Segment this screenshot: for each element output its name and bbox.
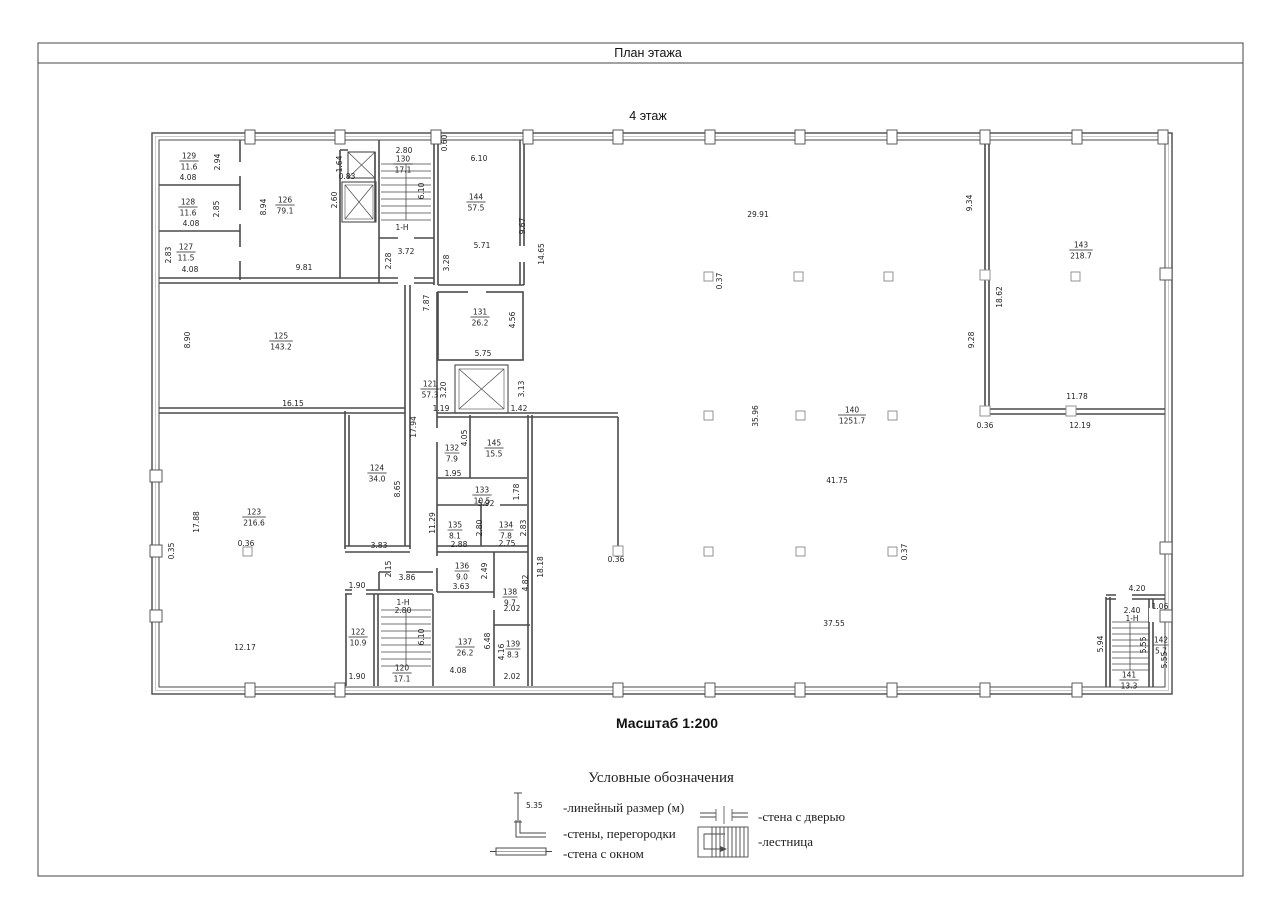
room-label-137: 13726.2: [455, 638, 474, 658]
legend-item-linear: -линейный размер (м): [563, 800, 684, 815]
room-number: 143: [1074, 241, 1089, 250]
wall-door-icon: [700, 806, 748, 824]
dim-label: 5.55: [1160, 651, 1169, 668]
linear-dimension-icon: [514, 793, 522, 822]
dim-label: 4.82: [521, 574, 530, 591]
dim-label: 3.83: [371, 541, 388, 550]
dim-label: 0.60: [440, 134, 449, 151]
dim-label: 5.55: [1139, 636, 1148, 653]
room-number: 130: [396, 155, 411, 164]
room-area: 26.2: [472, 319, 489, 328]
room-number: 145: [487, 439, 502, 448]
dim-label: 2.80: [475, 519, 484, 536]
dim-label: 17.94: [409, 416, 418, 438]
dim-label: 3.20: [439, 381, 448, 398]
door-openings: [238, 162, 1154, 628]
dim-label: 2.80: [395, 606, 412, 615]
room-number: 127: [179, 243, 194, 252]
room-label-124: 12434.0: [367, 464, 386, 484]
room-number: 141: [1122, 671, 1137, 680]
room-area: 11.5: [178, 254, 195, 263]
dim-label: 4.08: [180, 173, 197, 182]
room-area: 57.5: [468, 204, 485, 213]
dim-label: 3.63: [453, 582, 470, 591]
room-area: 7.9: [446, 455, 458, 464]
room-area: 15.5: [486, 450, 503, 459]
dim-label: 2.80: [396, 146, 413, 155]
room-label-131: 13126.2: [470, 308, 489, 328]
room-number: 120: [395, 664, 410, 673]
room-number: 122: [351, 628, 366, 637]
dim-label: 4.08: [450, 666, 467, 675]
room-area: 26.2: [457, 649, 474, 658]
room-label-130: 13017.1: [393, 155, 412, 175]
dim-label: 1.90: [349, 581, 366, 590]
dim-label: 29.91: [747, 210, 769, 219]
room-number: 131: [473, 308, 488, 317]
room-area: 17.1: [394, 675, 411, 684]
room-area: 79.1: [277, 207, 294, 216]
dim-label: 0.37: [715, 272, 724, 289]
dim-label: 4.20: [1129, 584, 1146, 593]
room-number: 121: [423, 380, 438, 389]
dim-label: 2.28: [384, 252, 393, 269]
room-number: 136: [455, 562, 470, 571]
dim-label: 11.29: [428, 512, 437, 534]
dim-label: 2.94: [213, 153, 222, 170]
dim-label: 1.64: [335, 155, 344, 172]
room-area: 8.3: [507, 651, 519, 660]
dim-label: 2.85: [212, 200, 221, 217]
room-number: 132: [445, 444, 460, 453]
floor-title: 4 этаж: [629, 109, 667, 123]
room-area: 34.0: [369, 475, 386, 484]
room-number: 139: [506, 640, 521, 649]
room-number: 135: [448, 521, 463, 530]
dim-label: 1-H: [1125, 614, 1138, 623]
legend-item-walls: -стены, перегородки: [563, 826, 676, 841]
stairs-icon: [698, 827, 748, 857]
room-label-123: 123216.6: [242, 508, 266, 528]
room-number: 140: [845, 406, 860, 415]
dim-label: 0.36: [238, 539, 255, 548]
room-label-139: 1398.3: [506, 640, 521, 660]
dim-label: 12.19: [1069, 421, 1091, 430]
dim-label: 0.83: [339, 172, 356, 181]
dim-label: 1-H: [395, 223, 408, 232]
dim-label: 2.83: [519, 519, 528, 536]
wall-window-icon: [490, 848, 552, 855]
dim-label: 3.72: [398, 247, 415, 256]
room-labels: 12911.612811.612711.512679.113017.114457…: [176, 152, 1168, 691]
dim-label: 8.94: [259, 198, 268, 215]
dim-label: 6.48: [483, 632, 492, 649]
dim-label: 2.02: [504, 604, 521, 613]
room-area: 9.0: [456, 573, 468, 582]
dim-label: 2.15: [384, 560, 393, 577]
dim-label: 37.55: [823, 619, 845, 628]
room-area: 11.6: [180, 209, 197, 218]
room-label-145: 14515.5: [484, 439, 503, 459]
room-label-143: 143218.7: [1069, 241, 1093, 261]
room-number: 138: [503, 588, 518, 597]
document-page: План этажа 4 этаж Масштаб 1:200: [0, 0, 1280, 911]
dim-label: 4.56: [508, 311, 517, 328]
dim-label: 35.96: [751, 405, 760, 427]
room-area: 10.9: [350, 639, 367, 648]
room-number: 142: [1154, 636, 1169, 645]
room-label-128: 12811.6: [178, 198, 197, 218]
dim-label: 8.65: [393, 480, 402, 497]
legend: Условные обозначения 5.35 -линейный разм…: [490, 770, 845, 861]
dim-label: 6.10: [471, 154, 488, 163]
room-number: 128: [181, 198, 196, 207]
page-header-title: План этажа: [614, 46, 682, 60]
room-label-134: 1347.8: [499, 521, 514, 541]
room-number: 134: [499, 521, 514, 530]
dim-label: 7.87: [422, 294, 431, 311]
dim-label: 4.05: [460, 429, 469, 446]
room-label-129: 12911.6: [179, 152, 198, 172]
room-label-141: 14113.3: [1119, 671, 1138, 691]
dim-label: 1.19: [433, 404, 450, 413]
room-number: 123: [247, 508, 262, 517]
dim-label: 5.75: [475, 349, 492, 358]
dim-label: 41.75: [826, 476, 848, 485]
dim-label: 14.65: [537, 243, 546, 265]
room-area: 13.3: [1121, 682, 1138, 691]
dim-label: 3.13: [517, 380, 526, 397]
dim-label: 8.90: [183, 331, 192, 348]
dim-label: 3.28: [442, 254, 451, 271]
dim-label: 1.95: [445, 469, 462, 478]
dim-label: 16.15: [282, 399, 304, 408]
legend-item-door: -стена с дверью: [758, 809, 845, 824]
dim-label: 1.78: [512, 483, 521, 500]
dim-label: 5.92: [478, 499, 495, 508]
dim-label: 1.90: [349, 672, 366, 681]
dim-label: 11.78: [1066, 392, 1088, 401]
room-number: 125: [274, 332, 289, 341]
room-number: 124: [370, 464, 385, 473]
dim-label: 5.94: [1096, 635, 1105, 652]
dim-label: 6.10: [417, 628, 426, 645]
dim-label: 0.37: [900, 543, 909, 560]
scale-label: Масштаб 1:200: [616, 715, 718, 731]
room-number: 133: [475, 486, 490, 495]
dim-label: 2.83: [164, 246, 173, 263]
room-label-136: 1369.0: [455, 562, 470, 582]
room-area: 11.6: [181, 163, 198, 172]
dim-label: 9.67: [518, 217, 527, 234]
room-label-127: 12711.5: [176, 243, 195, 263]
dim-label: 9.28: [967, 331, 976, 348]
room-number: 137: [458, 638, 473, 647]
room-area: 218.7: [1070, 252, 1092, 261]
room-label-120: 12017.1: [392, 664, 411, 684]
dim-label: 0.36: [977, 421, 994, 430]
room-area: 143.2: [270, 343, 292, 352]
legend-item-stairs: -лестница: [758, 834, 813, 849]
room-label-126: 12679.1: [275, 196, 294, 216]
dim-label: 4.08: [182, 265, 199, 274]
dim-label: 18.62: [995, 286, 1004, 308]
dim-label: 17.88: [192, 511, 201, 533]
room-label-132: 1327.9: [445, 444, 460, 464]
dim-label: 0.36: [608, 555, 625, 564]
room-label-122: 12210.9: [348, 628, 367, 648]
room-area: 216.6: [243, 519, 265, 528]
room-area: 1251.7: [839, 417, 865, 426]
legend-item-window: -стена с окном: [563, 846, 644, 861]
dim-label: 12.17: [234, 643, 256, 652]
floor-plan-drawing: План этажа 4 этаж Масштаб 1:200: [0, 0, 1280, 911]
dim-label: 2.75: [499, 539, 516, 548]
interior-walls: [159, 140, 1165, 687]
dim-label: 3.86: [399, 573, 416, 582]
room-label-144: 14457.5: [466, 193, 485, 213]
dim-label: 4.16: [497, 643, 506, 660]
dim-label: 4.08: [183, 219, 200, 228]
legend-title: Условные обозначения: [588, 770, 734, 786]
legend-dimension-sample: 5.35: [526, 801, 543, 810]
dim-label: 9.34: [965, 194, 974, 211]
room-number: 144: [469, 193, 484, 202]
room-label-140: 1401251.7: [838, 406, 866, 426]
dim-label: 9.81: [296, 263, 313, 272]
room-number: 129: [182, 152, 197, 161]
dim-label: 2.60: [330, 191, 339, 208]
dim-label: 6.10: [417, 182, 426, 199]
dim-label: 1.06: [1152, 602, 1169, 611]
room-area: 17.1: [395, 166, 412, 175]
room-area: 57.3: [422, 391, 439, 400]
room-label-135: 1358.1: [448, 521, 463, 541]
dim-label: 5.71: [474, 241, 491, 250]
dim-label: 18.18: [536, 556, 545, 578]
dim-label: 1.42: [511, 404, 528, 413]
walls-icon: [516, 820, 546, 837]
dim-label: 2.49: [480, 562, 489, 579]
dim-label: 2.88: [451, 540, 468, 549]
dim-label: 2.02: [504, 672, 521, 681]
room-number: 126: [278, 196, 293, 205]
room-label-125: 125143.2: [269, 332, 293, 352]
dim-label: 0.35: [167, 542, 176, 559]
